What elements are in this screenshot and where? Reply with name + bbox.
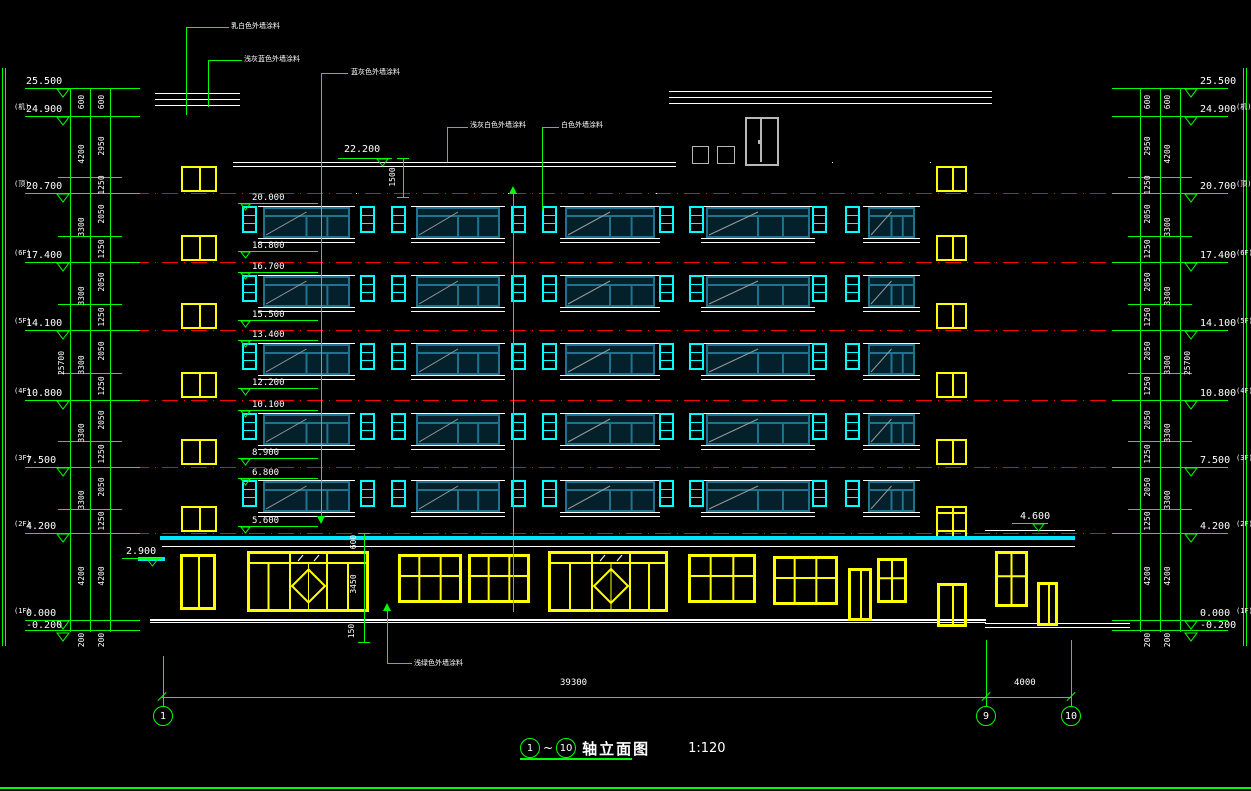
floor-line bbox=[75, 467, 1180, 468]
dim-text: 2050 bbox=[1144, 341, 1152, 360]
window-small-mullion bbox=[544, 223, 555, 224]
window-small bbox=[542, 206, 557, 233]
balcony-rail-line bbox=[701, 512, 815, 513]
title-axis-start-bubble: 1 bbox=[520, 738, 540, 758]
level-prefix: (顶) bbox=[1236, 181, 1251, 188]
window-small-mullion bbox=[544, 284, 555, 285]
penthouse-door-knob bbox=[758, 140, 762, 144]
window-small bbox=[542, 343, 557, 370]
dim-text: 4200 bbox=[1144, 566, 1152, 585]
window-small-mullion bbox=[244, 497, 255, 498]
level-triangle bbox=[1184, 330, 1200, 341]
window-small-mullion bbox=[362, 215, 373, 216]
dim-text: 3450 bbox=[350, 574, 358, 593]
window-small-mullion bbox=[814, 360, 825, 361]
stair-window-divider bbox=[199, 305, 201, 327]
dim-text: 3300 bbox=[1164, 286, 1172, 305]
dim-text: 200 bbox=[1164, 633, 1172, 647]
dim-text: 2050 bbox=[98, 410, 106, 429]
mark-value: 6.800 bbox=[252, 469, 279, 478]
shop-window-grid bbox=[398, 554, 462, 603]
window-small bbox=[845, 413, 860, 440]
stair-window-divider bbox=[199, 441, 201, 463]
window-small-mullion bbox=[244, 223, 255, 224]
window-small-mullion bbox=[691, 223, 702, 224]
finish-note: 白色外墙涂料 bbox=[561, 122, 603, 129]
title-scale: 1:120 bbox=[688, 741, 725, 756]
balcony-rail-line bbox=[701, 311, 815, 312]
wall-line bbox=[669, 91, 826, 92]
leader-line bbox=[321, 73, 322, 520]
level-value: 20.700 bbox=[26, 182, 62, 192]
window-small-mullion bbox=[362, 422, 373, 423]
dim-line bbox=[70, 88, 71, 632]
level-triangle bbox=[1184, 262, 1200, 273]
leader-line bbox=[186, 27, 229, 28]
balcony-rail-line bbox=[411, 311, 505, 312]
frame-border-bottom bbox=[0, 787, 1251, 789]
window-large-detail bbox=[416, 481, 500, 512]
window-large-detail bbox=[416, 344, 500, 375]
stair-window-divider bbox=[952, 237, 954, 259]
stair-window-divider bbox=[952, 441, 954, 463]
leader-arrow bbox=[383, 603, 392, 612]
window-small bbox=[689, 413, 704, 440]
dim-text: 2050 bbox=[98, 272, 106, 291]
title-axis-start: 1 bbox=[527, 743, 533, 754]
balcony-rail-line bbox=[701, 379, 815, 380]
level-value: 14.100 bbox=[26, 319, 62, 329]
dim-text: 2050 bbox=[1144, 204, 1152, 223]
balcony-rail-line bbox=[863, 307, 920, 308]
dim-text: 1250 bbox=[1144, 511, 1152, 530]
window-small bbox=[845, 206, 860, 233]
window-small-mullion bbox=[513, 422, 524, 423]
balcony-rail-line bbox=[258, 307, 355, 308]
level-value: 24.900 bbox=[26, 105, 62, 115]
window-small bbox=[659, 413, 674, 440]
dim-text: 1250 bbox=[1144, 175, 1152, 194]
stair-window-divider bbox=[199, 237, 201, 259]
balcony-rail-line bbox=[411, 238, 505, 239]
dim-text: 4200 bbox=[1164, 144, 1172, 163]
wall-line bbox=[162, 105, 163, 106]
level-prefix: (5F) bbox=[1236, 318, 1251, 325]
level-triangle bbox=[56, 467, 72, 478]
balcony-rail-line bbox=[411, 516, 505, 517]
dim-text: 2050 bbox=[98, 477, 106, 496]
window-small bbox=[360, 480, 375, 507]
balcony-rail-line bbox=[560, 375, 660, 376]
level-value: -0.200 bbox=[26, 621, 62, 631]
level-triangle bbox=[1184, 88, 1200, 99]
window-large-detail bbox=[263, 344, 350, 375]
dim-text: 1250 bbox=[98, 376, 106, 395]
window-small-mullion bbox=[661, 430, 672, 431]
mark-triangle bbox=[240, 251, 253, 260]
balcony-rail-line bbox=[701, 449, 815, 450]
balcony-rail-line bbox=[560, 242, 660, 243]
dim-line bbox=[110, 88, 111, 632]
dim-tick bbox=[1128, 467, 1192, 468]
window-small-mullion bbox=[661, 489, 672, 490]
balcony-rail-line bbox=[411, 512, 505, 513]
window-small-mullion bbox=[691, 497, 702, 498]
grid-ext-line bbox=[986, 640, 987, 706]
window-small-mullion bbox=[362, 292, 373, 293]
window-small-mullion bbox=[393, 223, 404, 224]
dim-tick bbox=[58, 177, 122, 178]
window-small-mullion bbox=[814, 284, 825, 285]
balcony-rail-line bbox=[701, 445, 815, 446]
window-small-mullion bbox=[244, 284, 255, 285]
dim-text: 2950 bbox=[98, 136, 106, 155]
mark-value: 10.100 bbox=[252, 401, 285, 410]
canopy-band bbox=[160, 536, 1075, 540]
balcony-rail-line bbox=[411, 445, 505, 446]
level-triangle bbox=[1184, 533, 1200, 544]
window-large-detail bbox=[706, 207, 810, 238]
window-small-mullion bbox=[661, 223, 672, 224]
shop-window-grid bbox=[995, 551, 1028, 607]
window-small-mullion bbox=[814, 215, 825, 216]
dim-text: 1250 bbox=[98, 175, 106, 194]
level-prefix: (2F) bbox=[1236, 521, 1251, 528]
window-small-mullion bbox=[847, 360, 858, 361]
stair-window-divider bbox=[952, 514, 954, 536]
dim-text: 600 bbox=[1144, 95, 1152, 109]
dim-tick bbox=[1128, 262, 1192, 263]
window-large-detail bbox=[868, 414, 915, 445]
window-small-mullion bbox=[393, 489, 404, 490]
wall-line bbox=[676, 103, 677, 104]
level-triangle bbox=[1184, 193, 1200, 204]
shop-door-divider bbox=[952, 586, 954, 624]
balcony-rail-line bbox=[701, 238, 815, 239]
window-large-detail bbox=[868, 207, 915, 238]
window-small-mullion bbox=[847, 352, 858, 353]
level-value: 4.200 bbox=[1200, 522, 1230, 532]
level-triangle bbox=[56, 116, 72, 127]
leader-line bbox=[542, 127, 559, 128]
window-small bbox=[391, 343, 406, 370]
wall-line bbox=[233, 166, 676, 167]
window-small-mullion bbox=[691, 284, 702, 285]
dim-text: 2050 bbox=[1144, 272, 1152, 291]
window-small-mullion bbox=[661, 284, 672, 285]
dim-line bbox=[1140, 88, 1141, 632]
dim-tick bbox=[397, 197, 409, 198]
level-triangle bbox=[56, 533, 72, 544]
level-value: 24.900 bbox=[1200, 105, 1236, 115]
leader-line bbox=[513, 190, 514, 612]
window-large-detail bbox=[868, 276, 915, 307]
level-prefix: (4F) bbox=[1236, 388, 1251, 395]
dim-tick bbox=[1128, 116, 1192, 117]
dim-text: 1250 bbox=[98, 307, 106, 326]
dim-text: 3300 bbox=[78, 217, 86, 236]
window-small-mullion bbox=[544, 292, 555, 293]
dim-text: 200 bbox=[1144, 633, 1152, 647]
window-small-mullion bbox=[393, 284, 404, 285]
level-triangle bbox=[1184, 632, 1200, 643]
frame-border bbox=[1243, 68, 1244, 646]
balcony-rail-line bbox=[863, 516, 920, 517]
window-small bbox=[812, 206, 827, 233]
dim-tick bbox=[358, 533, 370, 534]
leader-line bbox=[321, 73, 348, 74]
window-large-detail bbox=[868, 344, 915, 375]
stair-window-divider bbox=[952, 305, 954, 327]
balcony-rail-line bbox=[863, 379, 920, 380]
mark-triangle bbox=[240, 388, 253, 397]
finish-note: 蓝灰色外墙涂料 bbox=[351, 69, 400, 76]
window-small bbox=[360, 206, 375, 233]
floor-line bbox=[75, 262, 1180, 263]
penthouse-door bbox=[745, 117, 779, 166]
window-small-mullion bbox=[847, 497, 858, 498]
frame-border bbox=[5, 68, 6, 646]
dim-text: 600 bbox=[1164, 95, 1172, 109]
dim-tick bbox=[1128, 630, 1192, 631]
dim-text: 3300 bbox=[1164, 217, 1172, 236]
wall-line bbox=[669, 97, 826, 98]
mark-value: 20.000 bbox=[252, 194, 285, 203]
mark-value: 13.400 bbox=[252, 331, 285, 340]
finish-note: 乳白色外墙涂料 bbox=[231, 23, 280, 30]
dim-text: 1250 bbox=[98, 444, 106, 463]
window-small-mullion bbox=[544, 360, 555, 361]
mark-triangle bbox=[240, 478, 253, 487]
level-value: 17.400 bbox=[1200, 251, 1236, 261]
window-large-detail bbox=[263, 207, 350, 238]
mark-triangle bbox=[240, 458, 253, 467]
window-small-mullion bbox=[393, 215, 404, 216]
level-value: 0.000 bbox=[1200, 609, 1230, 619]
balcony-rail-line bbox=[258, 375, 355, 376]
window-small bbox=[689, 275, 704, 302]
window-small-mullion bbox=[847, 223, 858, 224]
balcony-rail-line bbox=[560, 516, 660, 517]
window-small bbox=[391, 413, 406, 440]
level-prefix: (机) bbox=[1236, 104, 1251, 111]
dim-text: 1250 bbox=[1144, 376, 1152, 395]
mark-value: 15.500 bbox=[252, 311, 285, 320]
dim-text: 150 bbox=[348, 624, 356, 638]
window-small-mullion bbox=[244, 215, 255, 216]
window-large-detail bbox=[263, 414, 350, 445]
mark-value: 2.900 bbox=[126, 547, 156, 557]
balcony-rail-line bbox=[560, 449, 660, 450]
window-small-mullion bbox=[814, 352, 825, 353]
window-small-mullion bbox=[513, 352, 524, 353]
balcony-rail-line bbox=[701, 242, 815, 243]
shop-front-detail bbox=[548, 551, 668, 612]
mark-triangle bbox=[240, 203, 253, 212]
wall-line bbox=[825, 97, 992, 98]
frame-border bbox=[1246, 68, 1247, 646]
dim-text: 4200 bbox=[1164, 566, 1172, 585]
mark-triangle bbox=[240, 340, 253, 349]
stair-window-divider bbox=[952, 374, 954, 396]
balcony-rail-line bbox=[863, 238, 920, 239]
window-small-mullion bbox=[544, 489, 555, 490]
dim-text: 600 bbox=[350, 535, 358, 549]
window-small-mullion bbox=[847, 215, 858, 216]
window-small bbox=[542, 480, 557, 507]
penthouse-vent bbox=[692, 146, 709, 164]
dim-tick bbox=[1128, 177, 1192, 178]
dim-text: 1500 bbox=[389, 167, 397, 186]
dim-tick bbox=[1128, 620, 1192, 621]
dim-text: 25700 bbox=[1184, 351, 1192, 375]
window-small-mullion bbox=[393, 352, 404, 353]
window-large-detail bbox=[565, 207, 655, 238]
level-prefix: (1F) bbox=[1236, 608, 1251, 615]
dim-line bbox=[403, 158, 404, 197]
window-large-detail bbox=[416, 414, 500, 445]
window-small bbox=[689, 480, 704, 507]
floor-line bbox=[75, 193, 1180, 194]
window-small-mullion bbox=[393, 430, 404, 431]
dim-tick bbox=[1128, 509, 1192, 510]
title-underline bbox=[520, 758, 632, 760]
leader-arrow bbox=[317, 516, 326, 525]
window-small-mullion bbox=[513, 489, 524, 490]
window-small-mullion bbox=[814, 489, 825, 490]
balcony-rail-line bbox=[560, 445, 660, 446]
balcony-rail-line bbox=[411, 379, 505, 380]
window-small-mullion bbox=[814, 223, 825, 224]
level-value: 7.500 bbox=[26, 456, 56, 466]
window-small-mullion bbox=[544, 422, 555, 423]
dim-text: 200 bbox=[98, 633, 106, 647]
level-value: 25.500 bbox=[1200, 77, 1236, 87]
window-small-mullion bbox=[814, 430, 825, 431]
finish-note: 浅灰蓝色外墙涂料 bbox=[244, 56, 300, 63]
balcony-rail-line bbox=[863, 512, 920, 513]
level-value: -0.200 bbox=[1200, 621, 1236, 631]
level-prefix: (3F) bbox=[1236, 455, 1251, 462]
wall-line bbox=[930, 162, 931, 163]
dim-tick bbox=[1128, 236, 1192, 237]
level-triangle bbox=[56, 632, 72, 643]
window-large-detail bbox=[706, 414, 810, 445]
window-small-mullion bbox=[661, 292, 672, 293]
bottom-dim-line bbox=[162, 697, 1071, 698]
window-small-mullion bbox=[393, 422, 404, 423]
dim-line bbox=[90, 88, 91, 632]
balcony-rail-line bbox=[701, 375, 815, 376]
window-small bbox=[812, 343, 827, 370]
mark-triangle bbox=[240, 320, 253, 329]
window-small bbox=[689, 343, 704, 370]
balcony-rail-line bbox=[701, 516, 815, 517]
window-small-mullion bbox=[661, 360, 672, 361]
mark-value: 22.200 bbox=[344, 145, 380, 155]
window-small bbox=[845, 343, 860, 370]
level-triangle bbox=[56, 400, 72, 411]
window-large-detail bbox=[263, 481, 350, 512]
window-small-mullion bbox=[244, 430, 255, 431]
dim-line bbox=[364, 533, 365, 642]
window-small bbox=[845, 480, 860, 507]
grid-bubble: 1 bbox=[153, 706, 173, 726]
window-small bbox=[812, 413, 827, 440]
level-triangle bbox=[56, 262, 72, 273]
wall-line bbox=[155, 93, 240, 94]
balcony-rail-line bbox=[258, 512, 355, 513]
wall-line bbox=[1071, 530, 1072, 531]
dim-text: 600 bbox=[98, 95, 106, 109]
level-triangle bbox=[56, 88, 72, 99]
window-small-mullion bbox=[513, 223, 524, 224]
grid-ext-line bbox=[1071, 640, 1072, 706]
bottom-dim-text: 39300 bbox=[560, 679, 587, 688]
window-small bbox=[391, 206, 406, 233]
dim-tick bbox=[58, 304, 122, 305]
dim-tick bbox=[58, 441, 122, 442]
window-small-mullion bbox=[362, 497, 373, 498]
level-triangle bbox=[56, 193, 72, 204]
window-small-mullion bbox=[393, 497, 404, 498]
dim-text: 3300 bbox=[1164, 490, 1172, 509]
window-small bbox=[360, 413, 375, 440]
window-small-mullion bbox=[544, 497, 555, 498]
balcony-rail-line bbox=[258, 445, 355, 446]
window-small-mullion bbox=[244, 489, 255, 490]
elevation-drawing-canvas: 1 ~ 10 轴立面图 1:120 25.500(机)24.900(顶)20.7… bbox=[0, 0, 1251, 791]
level-triangle bbox=[1184, 116, 1200, 127]
window-small bbox=[360, 275, 375, 302]
dim-tick bbox=[1128, 193, 1192, 194]
leader-arrow bbox=[509, 186, 518, 195]
wall-line bbox=[985, 627, 1130, 628]
balcony-rail-line bbox=[560, 379, 660, 380]
wall-line bbox=[356, 193, 357, 194]
window-small-mullion bbox=[847, 430, 858, 431]
window-small bbox=[360, 343, 375, 370]
level-value: 17.400 bbox=[26, 251, 62, 261]
dim-text: 3300 bbox=[78, 490, 86, 509]
dim-text: 1250 bbox=[98, 239, 106, 258]
mark-triangle bbox=[1032, 523, 1047, 533]
window-small bbox=[542, 275, 557, 302]
dim-text: 3300 bbox=[78, 286, 86, 305]
grid-bubble: 10 bbox=[1061, 706, 1081, 726]
window-large-detail bbox=[706, 481, 810, 512]
balcony-rail-line bbox=[701, 307, 815, 308]
window-large-detail bbox=[565, 276, 655, 307]
dim-text: 3300 bbox=[1164, 355, 1172, 374]
wall-line bbox=[825, 103, 992, 104]
dim-tick bbox=[1128, 533, 1192, 534]
window-small-mullion bbox=[661, 422, 672, 423]
balcony-rail-line bbox=[560, 238, 660, 239]
shop-window-grid bbox=[468, 554, 530, 603]
level-prefix: (6F) bbox=[1236, 250, 1251, 257]
window-small-mullion bbox=[814, 422, 825, 423]
wall-line bbox=[233, 162, 676, 163]
dim-text: 4200 bbox=[78, 566, 86, 585]
dim-text: 200 bbox=[78, 633, 86, 647]
stair-window-divider bbox=[199, 374, 201, 396]
wall-line bbox=[155, 99, 240, 100]
window-small-mullion bbox=[513, 284, 524, 285]
dim-text: 2050 bbox=[1144, 410, 1152, 429]
window-small-mullion bbox=[244, 422, 255, 423]
dim-text: 2050 bbox=[98, 204, 106, 223]
